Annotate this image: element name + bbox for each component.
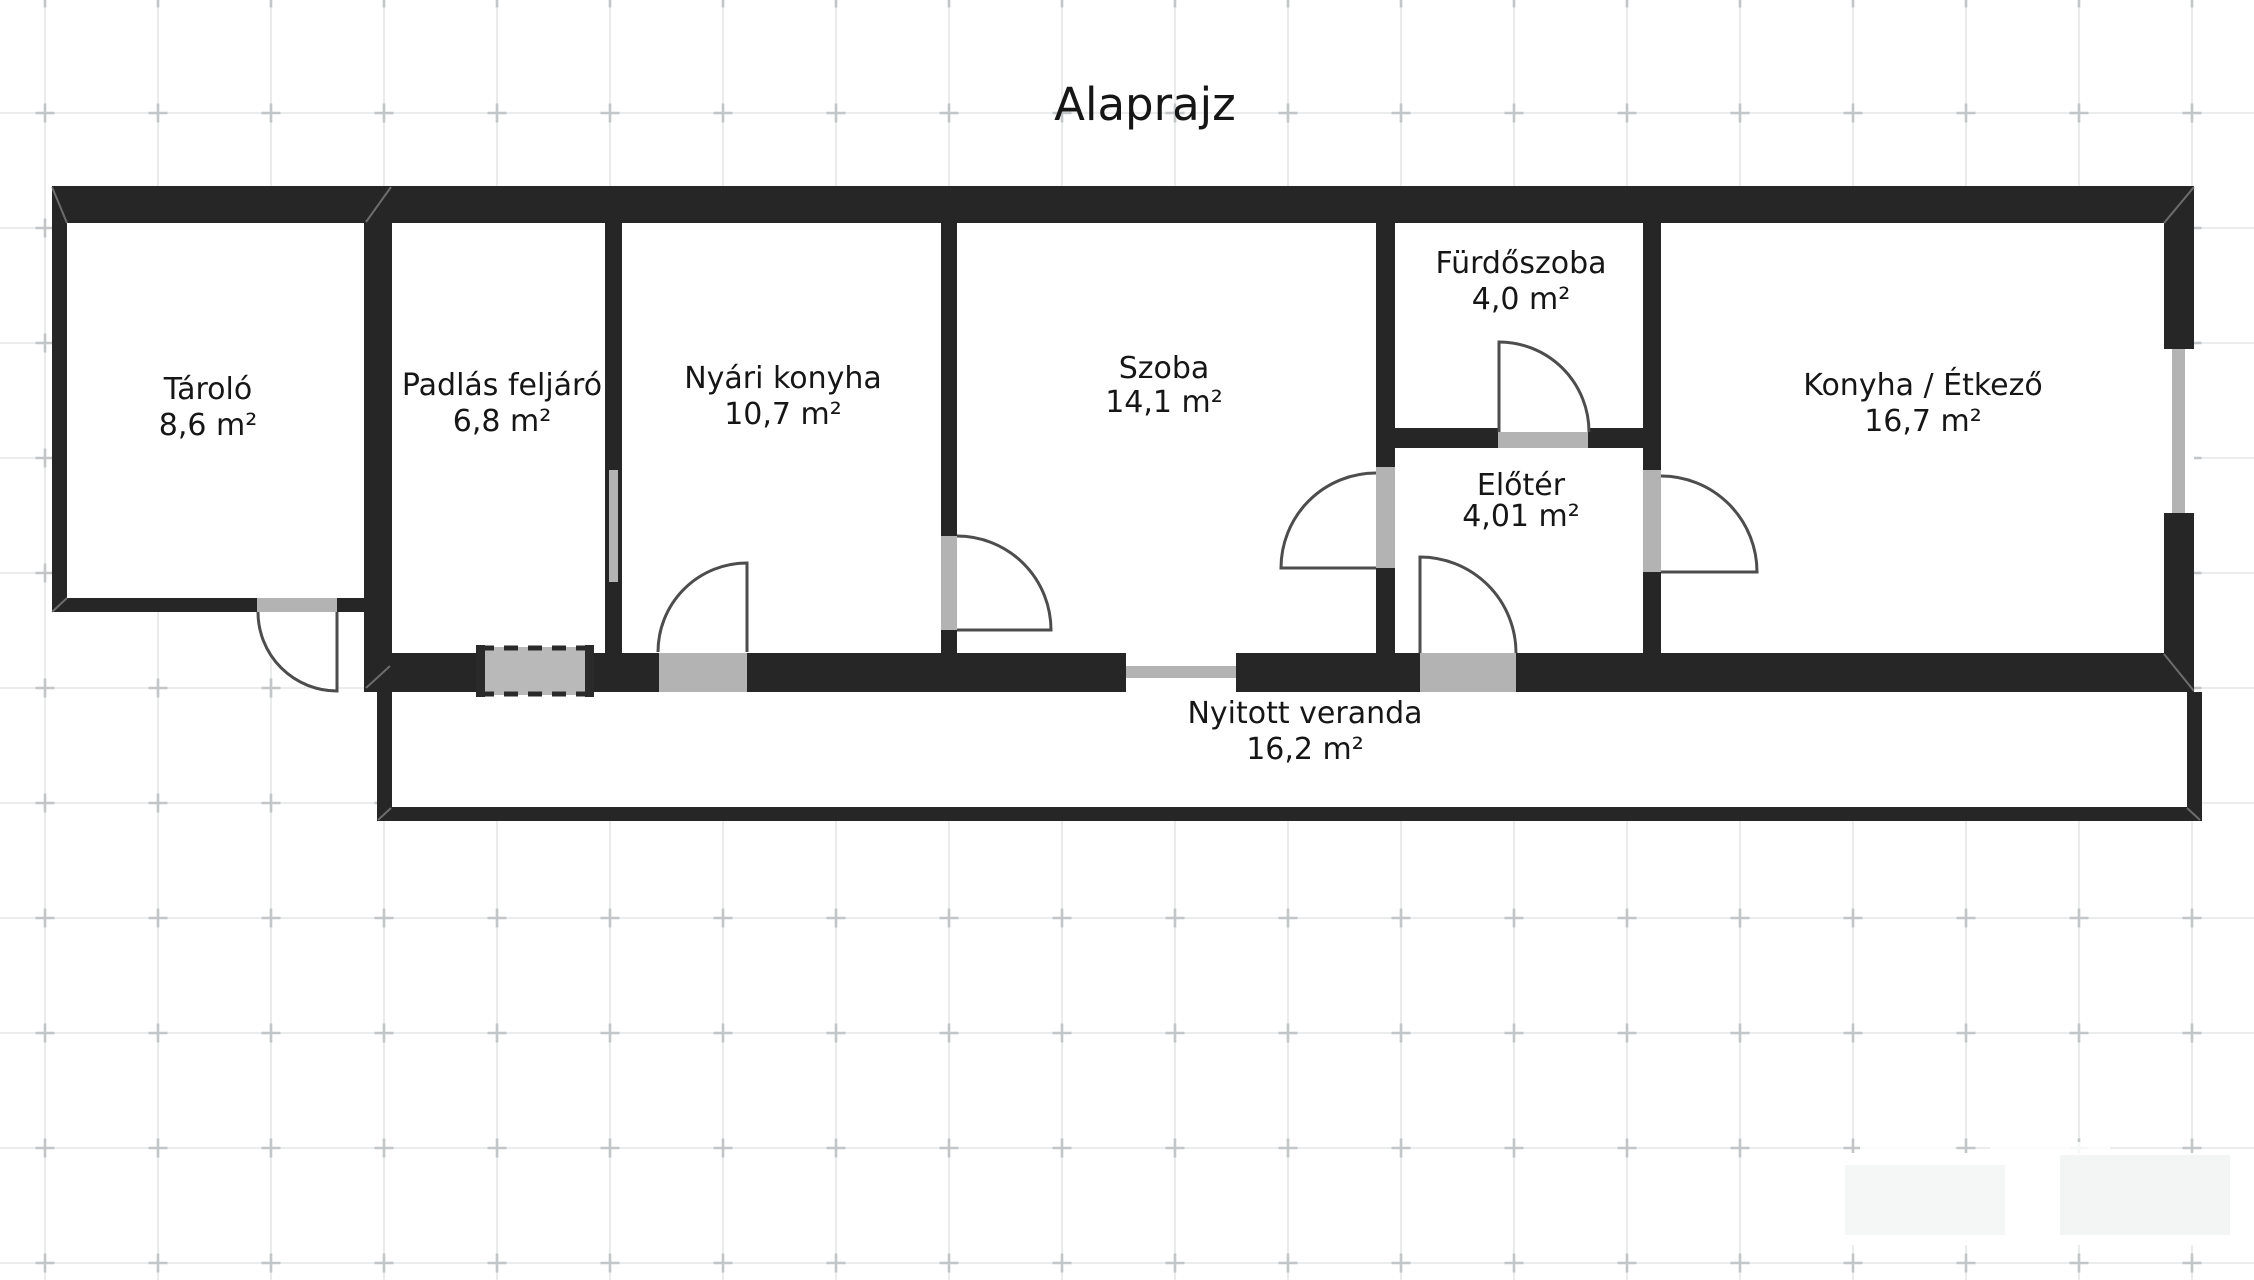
room-label-padlas-area: 6,8 m²: [453, 404, 552, 439]
threshold-konyha-door: [1643, 470, 1661, 572]
wall-veranda-left: [377, 692, 392, 821]
room-label-eloter-name: Előtér: [1477, 468, 1566, 503]
wall-exterior-left: [52, 186, 67, 612]
room-label-furdo-name: Fürdőszoba: [1436, 246, 1607, 281]
window-szoba-bottom: [1123, 653, 1239, 692]
room-label-konyha-name: Konyha / Étkező: [1803, 367, 2042, 403]
wall-eloter-konyha: [1643, 223, 1661, 653]
threshold-tarolo-door: [257, 598, 337, 612]
wall-veranda-bottom: [377, 807, 2202, 821]
wall-tarolo-padlas: [364, 186, 392, 692]
watermark-fade-area: [1807, 1142, 2247, 1245]
room-label-konyha-area: 16,7 m²: [1864, 404, 1982, 439]
room-label-szoba-name: Szoba: [1119, 351, 1210, 386]
room-label-veranda-name: Nyitott veranda: [1187, 696, 1422, 731]
threshold-nyari-konyha-door: [659, 653, 747, 692]
room-label-szoba-area: 14,1 m²: [1105, 385, 1223, 420]
threshold-entry-door: [1420, 653, 1516, 692]
room-label-tarolo-name: Tároló: [163, 372, 252, 407]
window-padlas-wall: [609, 470, 618, 582]
plan-title: Alaprajz: [1054, 78, 1236, 131]
room-label-furdo-area: 4,0 m²: [1472, 282, 1571, 317]
wall-exterior-bottom: [364, 653, 2194, 692]
wall-veranda-right: [2187, 692, 2202, 821]
floorplan-drawing: Alaprajz Tároló 8,6 m² Padlás feljáró 6,…: [0, 0, 2254, 1280]
threshold-szoba-eloter-door: [1376, 467, 1395, 568]
wall-szoba-eloter: [1376, 223, 1395, 653]
window-konyha-right: [2164, 345, 2194, 517]
room-label-nyari-name: Nyári konyha: [684, 361, 882, 396]
room-label-tarolo-area: 8,6 m²: [159, 408, 258, 443]
room-label-eloter-area: 4,01 m²: [1462, 499, 1580, 534]
room-label-padlas-name: Padlás feljáró: [402, 368, 602, 403]
attic-hatch: [476, 645, 594, 697]
wall-padlas-nyari: [605, 223, 622, 653]
floorplan-page: Alaprajz Tároló 8,6 m² Padlás feljáró 6,…: [0, 0, 2254, 1280]
room-label-nyari-area: 10,7 m²: [724, 397, 842, 432]
room-label-veranda-area: 16,2 m²: [1246, 732, 1364, 767]
threshold-szoba-nyari-door: [941, 536, 957, 630]
